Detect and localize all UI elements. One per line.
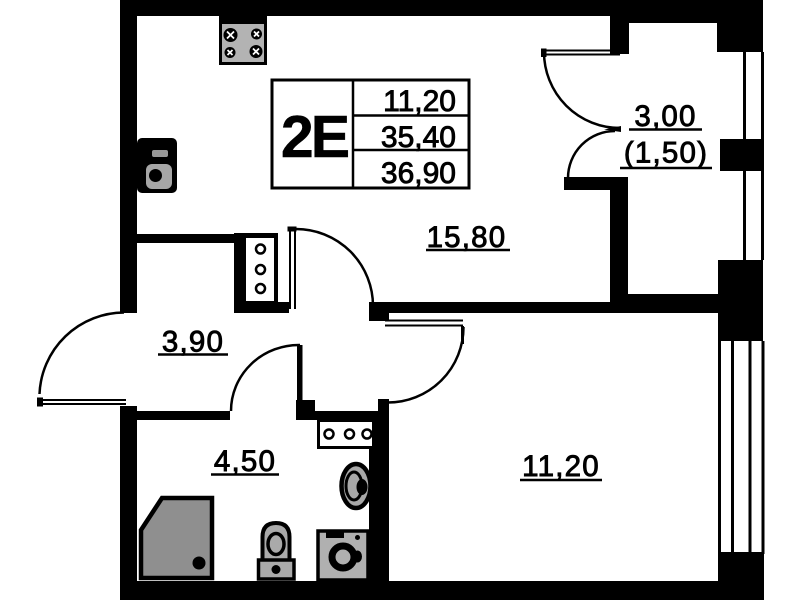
svg-text:35,40: 35,40	[381, 121, 456, 154]
svg-text:2E: 2E	[281, 104, 349, 170]
svg-text:(1,50): (1,50)	[624, 137, 708, 170]
svg-text:11,20: 11,20	[522, 450, 600, 483]
svg-text:3,00: 3,00	[634, 100, 696, 133]
svg-text:36,90: 36,90	[381, 157, 456, 190]
svg-text:4,50: 4,50	[214, 445, 276, 478]
svg-text:11,20: 11,20	[383, 85, 456, 118]
